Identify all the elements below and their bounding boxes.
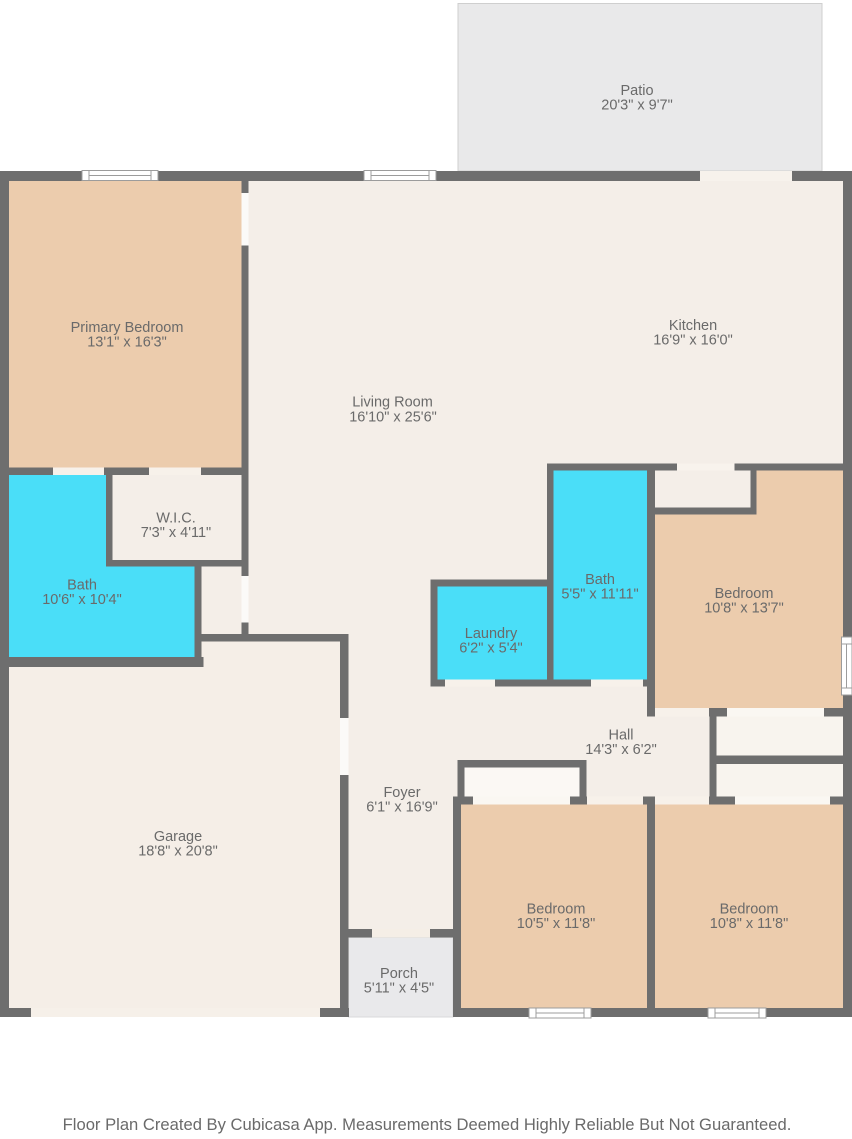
svg-text:20'3" x 9'7": 20'3" x 9'7": [601, 98, 672, 114]
svg-text:7'3" x 4'11": 7'3" x 4'11": [141, 525, 211, 541]
svg-text:6'2" x 5'4": 6'2" x 5'4": [459, 641, 522, 657]
svg-text:5'5" x 11'11": 5'5" x 11'11": [561, 587, 638, 603]
svg-text:13'1" x 16'3": 13'1" x 16'3": [87, 335, 167, 351]
svg-text:14'3" x 6'2": 14'3" x 6'2": [585, 742, 656, 758]
svg-text:16'10" x 25'6": 16'10" x 25'6": [349, 410, 437, 426]
svg-text:5'11" x 4'5": 5'11" x 4'5": [364, 981, 434, 997]
svg-text:10'8" x 13'7": 10'8" x 13'7": [704, 601, 784, 617]
svg-text:Floor Plan Created By Cubicasa: Floor Plan Created By Cubicasa App. Meas…: [63, 1115, 792, 1134]
svg-text:10'8" x 11'8": 10'8" x 11'8": [710, 916, 788, 932]
svg-text:16'9" x 16'0": 16'9" x 16'0": [653, 333, 733, 349]
svg-text:10'5" x 11'8": 10'5" x 11'8": [517, 916, 595, 932]
svg-text:10'6" x 10'4": 10'6" x 10'4": [42, 592, 122, 608]
svg-text:18'8" x 20'8": 18'8" x 20'8": [138, 844, 218, 860]
svg-text:6'1" x 16'9": 6'1" x 16'9": [366, 800, 437, 816]
svg-text:Living Room: Living Room: [352, 395, 433, 411]
